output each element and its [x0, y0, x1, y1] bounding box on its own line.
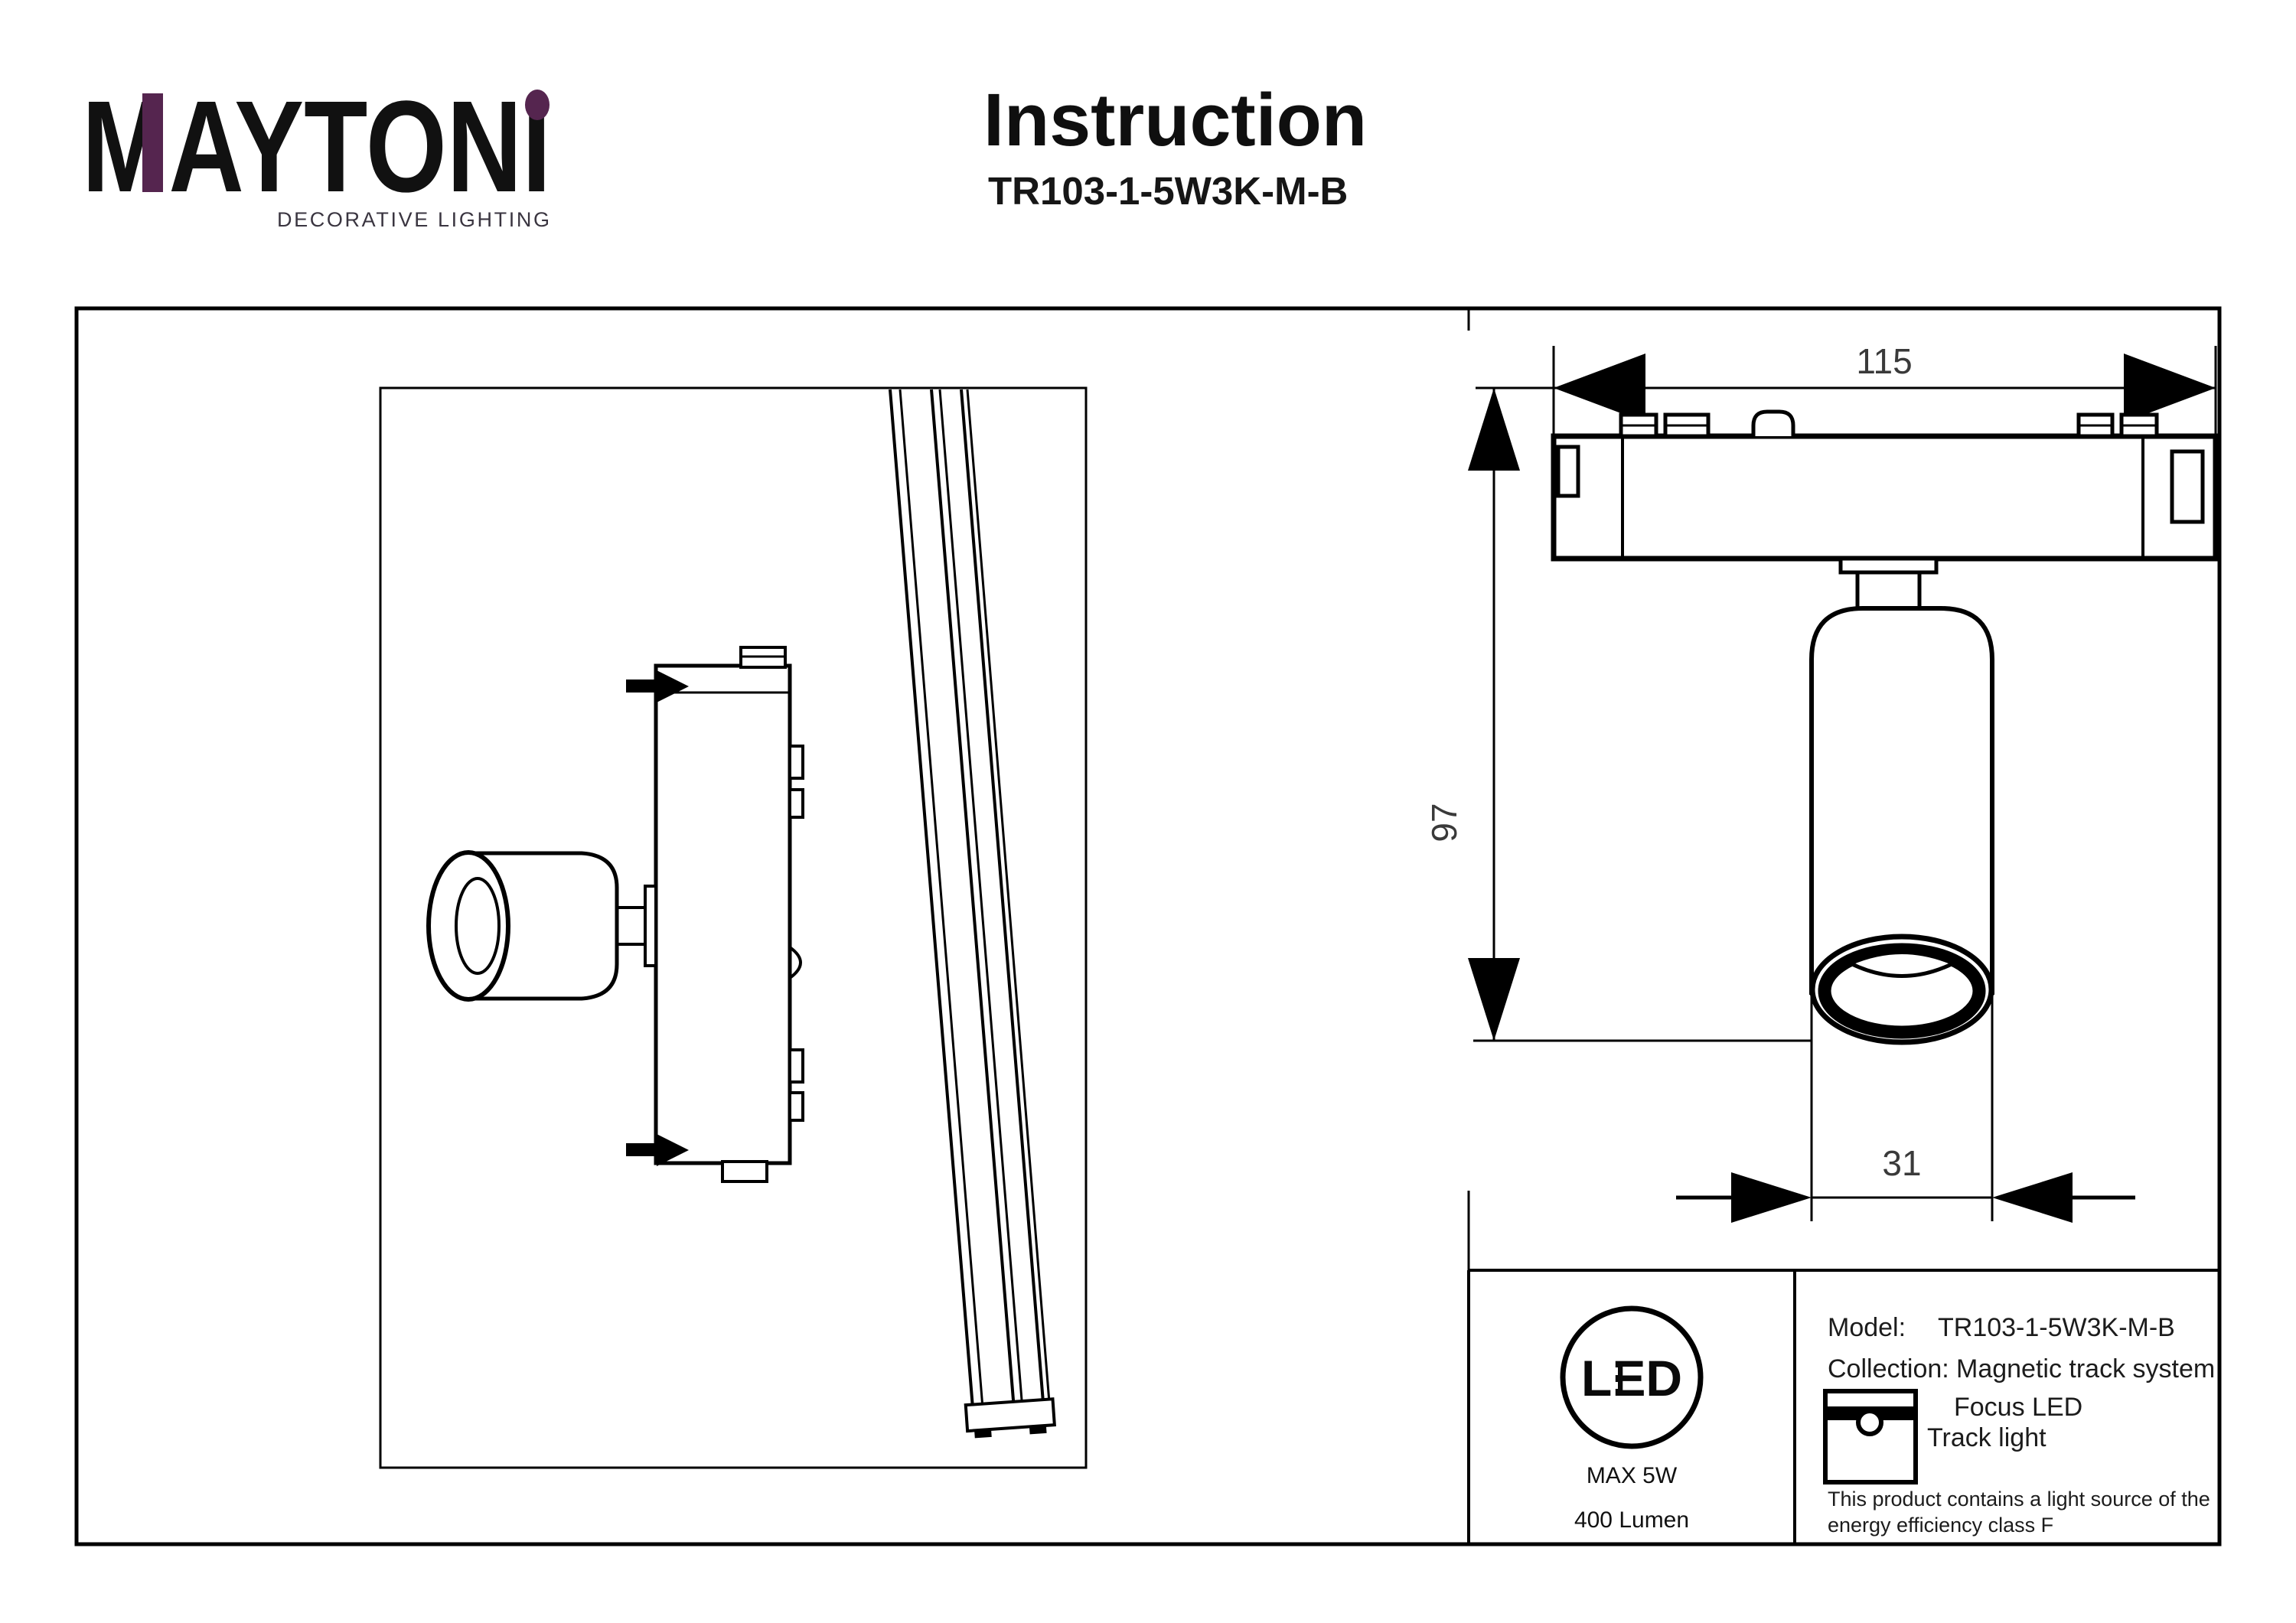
spotlight-front	[1812, 559, 1992, 1042]
installation-diagram	[380, 388, 1086, 1468]
track-adapter-side	[656, 647, 803, 1181]
spec-details: Model: TR103-1-5W3K-M-B Collection: Magn…	[1825, 1313, 2215, 1537]
spotlight-side	[429, 852, 656, 999]
page-title: Instruction	[983, 78, 1367, 161]
dim-arrow-inward-right-icon	[1992, 1172, 2073, 1223]
dim-arrow-inward-left-icon	[1731, 1172, 1812, 1223]
spec-box: LED MAX 5W 400 Lumen Model: TR103-1-5W3K…	[1469, 1270, 2219, 1544]
brand-i-dot-icon	[525, 90, 550, 120]
dimension-drawing: 115 97	[1424, 341, 2216, 1223]
collection-label: Collection:	[1828, 1354, 1949, 1383]
led-luminous-flux: 400 Lumen	[1574, 1507, 1689, 1533]
magnetic-track-icon	[890, 389, 1055, 1439]
dim-height-label: 97	[1424, 803, 1464, 842]
page-heading: Instruction TR103-1-5W3K-M-B	[983, 78, 1367, 213]
product-type-line2: Track light	[1927, 1423, 2047, 1452]
model-value: TR103-1-5W3K-M-B	[1938, 1313, 2175, 1342]
instruction-sheet: MAYTONI DECORATIVE LIGHTING Instruction …	[0, 0, 2296, 1623]
dim-arrow-right-icon	[2124, 354, 2216, 422]
led-badge: LED MAX 5W 400 Lumen	[1563, 1309, 1701, 1533]
collection-value: Magnetic track system	[1956, 1354, 2215, 1383]
product-type-line1: Focus LED	[1954, 1393, 2082, 1422]
page-subtitle-model: TR103-1-5W3K-M-B	[988, 169, 1348, 213]
track-adapter-front	[1554, 412, 2216, 559]
brand-m-accent-stroke	[142, 93, 163, 192]
dim-width-label: 115	[1856, 341, 1912, 381]
track-light-icon	[1825, 1391, 1916, 1482]
led-badge-text: LED	[1581, 1350, 1682, 1406]
dim-arrow-up-icon	[1468, 388, 1520, 471]
model-label: Model:	[1828, 1313, 1906, 1342]
dim-diameter-label: 31	[1882, 1143, 1921, 1183]
energy-note-line1: This product contains a light source of …	[1828, 1488, 2210, 1511]
dim-arrow-down-icon	[1468, 958, 1520, 1041]
energy-note-line2: energy efficiency class F	[1828, 1514, 2053, 1537]
led-max-power: MAX 5W	[1587, 1463, 1678, 1488]
brand-tagline: DECORATIVE LIGHTING	[277, 208, 551, 231]
brand-logo: MAYTONI DECORATIVE LIGHTING	[82, 74, 551, 231]
